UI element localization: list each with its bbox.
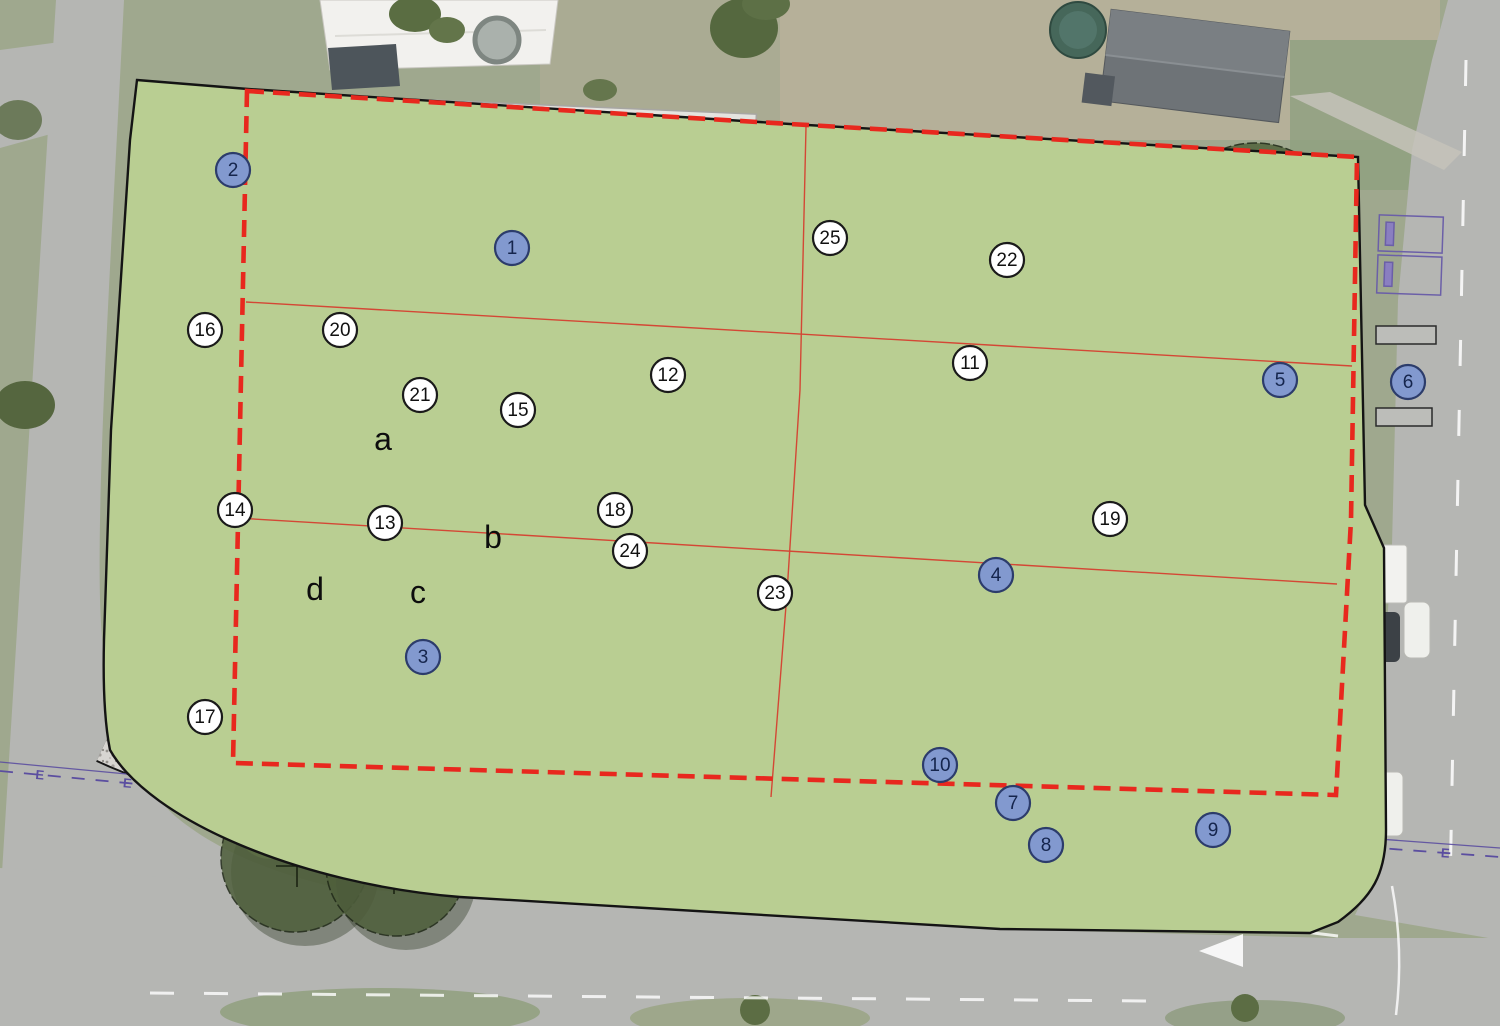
- marker-20: 20: [323, 313, 357, 347]
- marker-16: 16: [188, 313, 222, 347]
- marker-12: 12: [651, 358, 685, 392]
- marker-1: 1: [495, 231, 529, 265]
- marker-10: 10: [923, 748, 957, 782]
- tree-aerial: [429, 17, 465, 43]
- site-plan-page: EEEEEEEEEEEEEEEEE ×××××××× abcd 12345678…: [0, 0, 1500, 1026]
- marker-11: 11: [953, 346, 987, 380]
- marker-label-13: 13: [374, 513, 395, 534]
- water-tank-top: [1059, 11, 1097, 49]
- small-shed: [1082, 73, 1115, 106]
- marker-4: 4: [979, 558, 1013, 592]
- marker-label-8: 8: [1041, 835, 1052, 856]
- marker-label-14: 14: [224, 500, 246, 521]
- marker-23: 23: [758, 576, 792, 610]
- zone-label-a: a: [374, 421, 392, 457]
- parked-car: [1404, 602, 1430, 658]
- marker-22: 22: [990, 243, 1024, 277]
- electric-line-E: E: [1440, 845, 1450, 861]
- marker-label-7: 7: [1008, 793, 1019, 814]
- zone-label-d: d: [306, 571, 324, 607]
- zone-label-b: b: [484, 519, 502, 555]
- marker-24: 24: [613, 534, 647, 568]
- marker-17: 17: [188, 700, 222, 734]
- berm-tree: [740, 995, 770, 1025]
- marker-label-9: 9: [1208, 820, 1219, 841]
- electric-line-E: E: [35, 767, 45, 783]
- marker-label-22: 22: [996, 250, 1017, 271]
- marker-label-11: 11: [960, 353, 980, 374]
- marker-label-6: 6: [1403, 372, 1414, 393]
- zone-label-c: c: [410, 574, 426, 610]
- trampoline: [475, 18, 519, 62]
- marker-label-18: 18: [604, 500, 625, 521]
- berm-tree: [1231, 994, 1259, 1022]
- marker-15: 15: [501, 393, 535, 427]
- marker-8: 8: [1029, 828, 1063, 862]
- marker-3: 3: [406, 640, 440, 674]
- park-outline-stroke: [104, 80, 1386, 933]
- marker-label-15: 15: [507, 400, 528, 421]
- marker-label-23: 23: [764, 583, 785, 604]
- parking-bay: [1376, 408, 1432, 426]
- marker-7: 7: [996, 786, 1030, 820]
- marker-9: 9: [1196, 813, 1230, 847]
- marker-13: 13: [368, 506, 402, 540]
- site-plan-svg: EEEEEEEEEEEEEEEEE ×××××××× abcd 12345678…: [0, 0, 1500, 1026]
- marker-18: 18: [598, 493, 632, 527]
- marker-label-2: 2: [228, 160, 239, 181]
- marker-label-24: 24: [619, 541, 641, 562]
- marker-label-4: 4: [991, 565, 1002, 586]
- marker-2: 2: [216, 153, 250, 187]
- parking-bay: [1376, 326, 1436, 344]
- marker-25: 25: [813, 221, 847, 255]
- marker-label-5: 5: [1275, 370, 1286, 391]
- marker-label-10: 10: [929, 755, 950, 776]
- boundaries: [104, 80, 1386, 933]
- marker-5: 5: [1263, 363, 1297, 397]
- marker-6: 6: [1391, 365, 1425, 399]
- marker-label-17: 17: [194, 707, 215, 728]
- marker-19: 19: [1093, 502, 1127, 536]
- marker-label-20: 20: [329, 320, 350, 341]
- marker-label-25: 25: [819, 228, 840, 249]
- marker-label-19: 19: [1099, 509, 1120, 530]
- marker-label-12: 12: [657, 365, 678, 386]
- marker-label-3: 3: [418, 647, 429, 668]
- dark-shed: [328, 44, 400, 90]
- marker-label-16: 16: [194, 320, 215, 341]
- marker-label-1: 1: [507, 238, 518, 259]
- marker-21: 21: [403, 378, 437, 412]
- bush-aerial: [583, 79, 617, 101]
- marker-14: 14: [218, 493, 252, 527]
- marker-label-21: 21: [409, 385, 430, 406]
